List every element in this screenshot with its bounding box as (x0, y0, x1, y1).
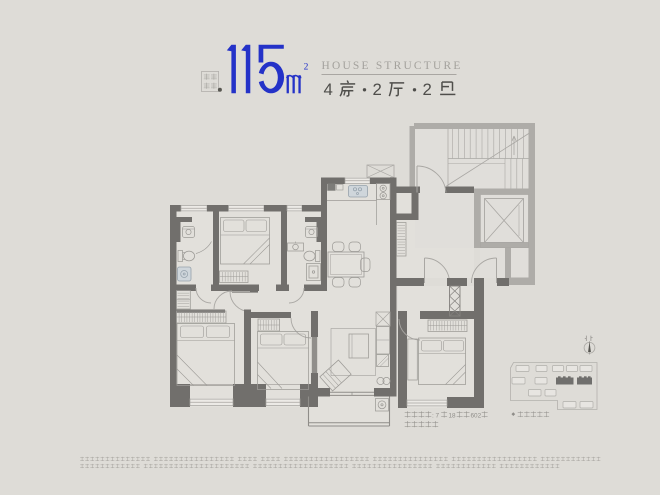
svg-text:4: 4 (324, 80, 333, 99)
svg-text:2: 2 (423, 80, 432, 99)
svg-text:: 7: : 7 (432, 412, 440, 419)
svg-text:18: 18 (449, 412, 457, 419)
svg-text:2: 2 (304, 63, 309, 73)
svg-text:HOUSE STRUCTURE: HOUSE STRUCTURE (322, 60, 463, 72)
svg-text:2: 2 (373, 80, 382, 99)
svg-text:602: 602 (471, 412, 482, 419)
